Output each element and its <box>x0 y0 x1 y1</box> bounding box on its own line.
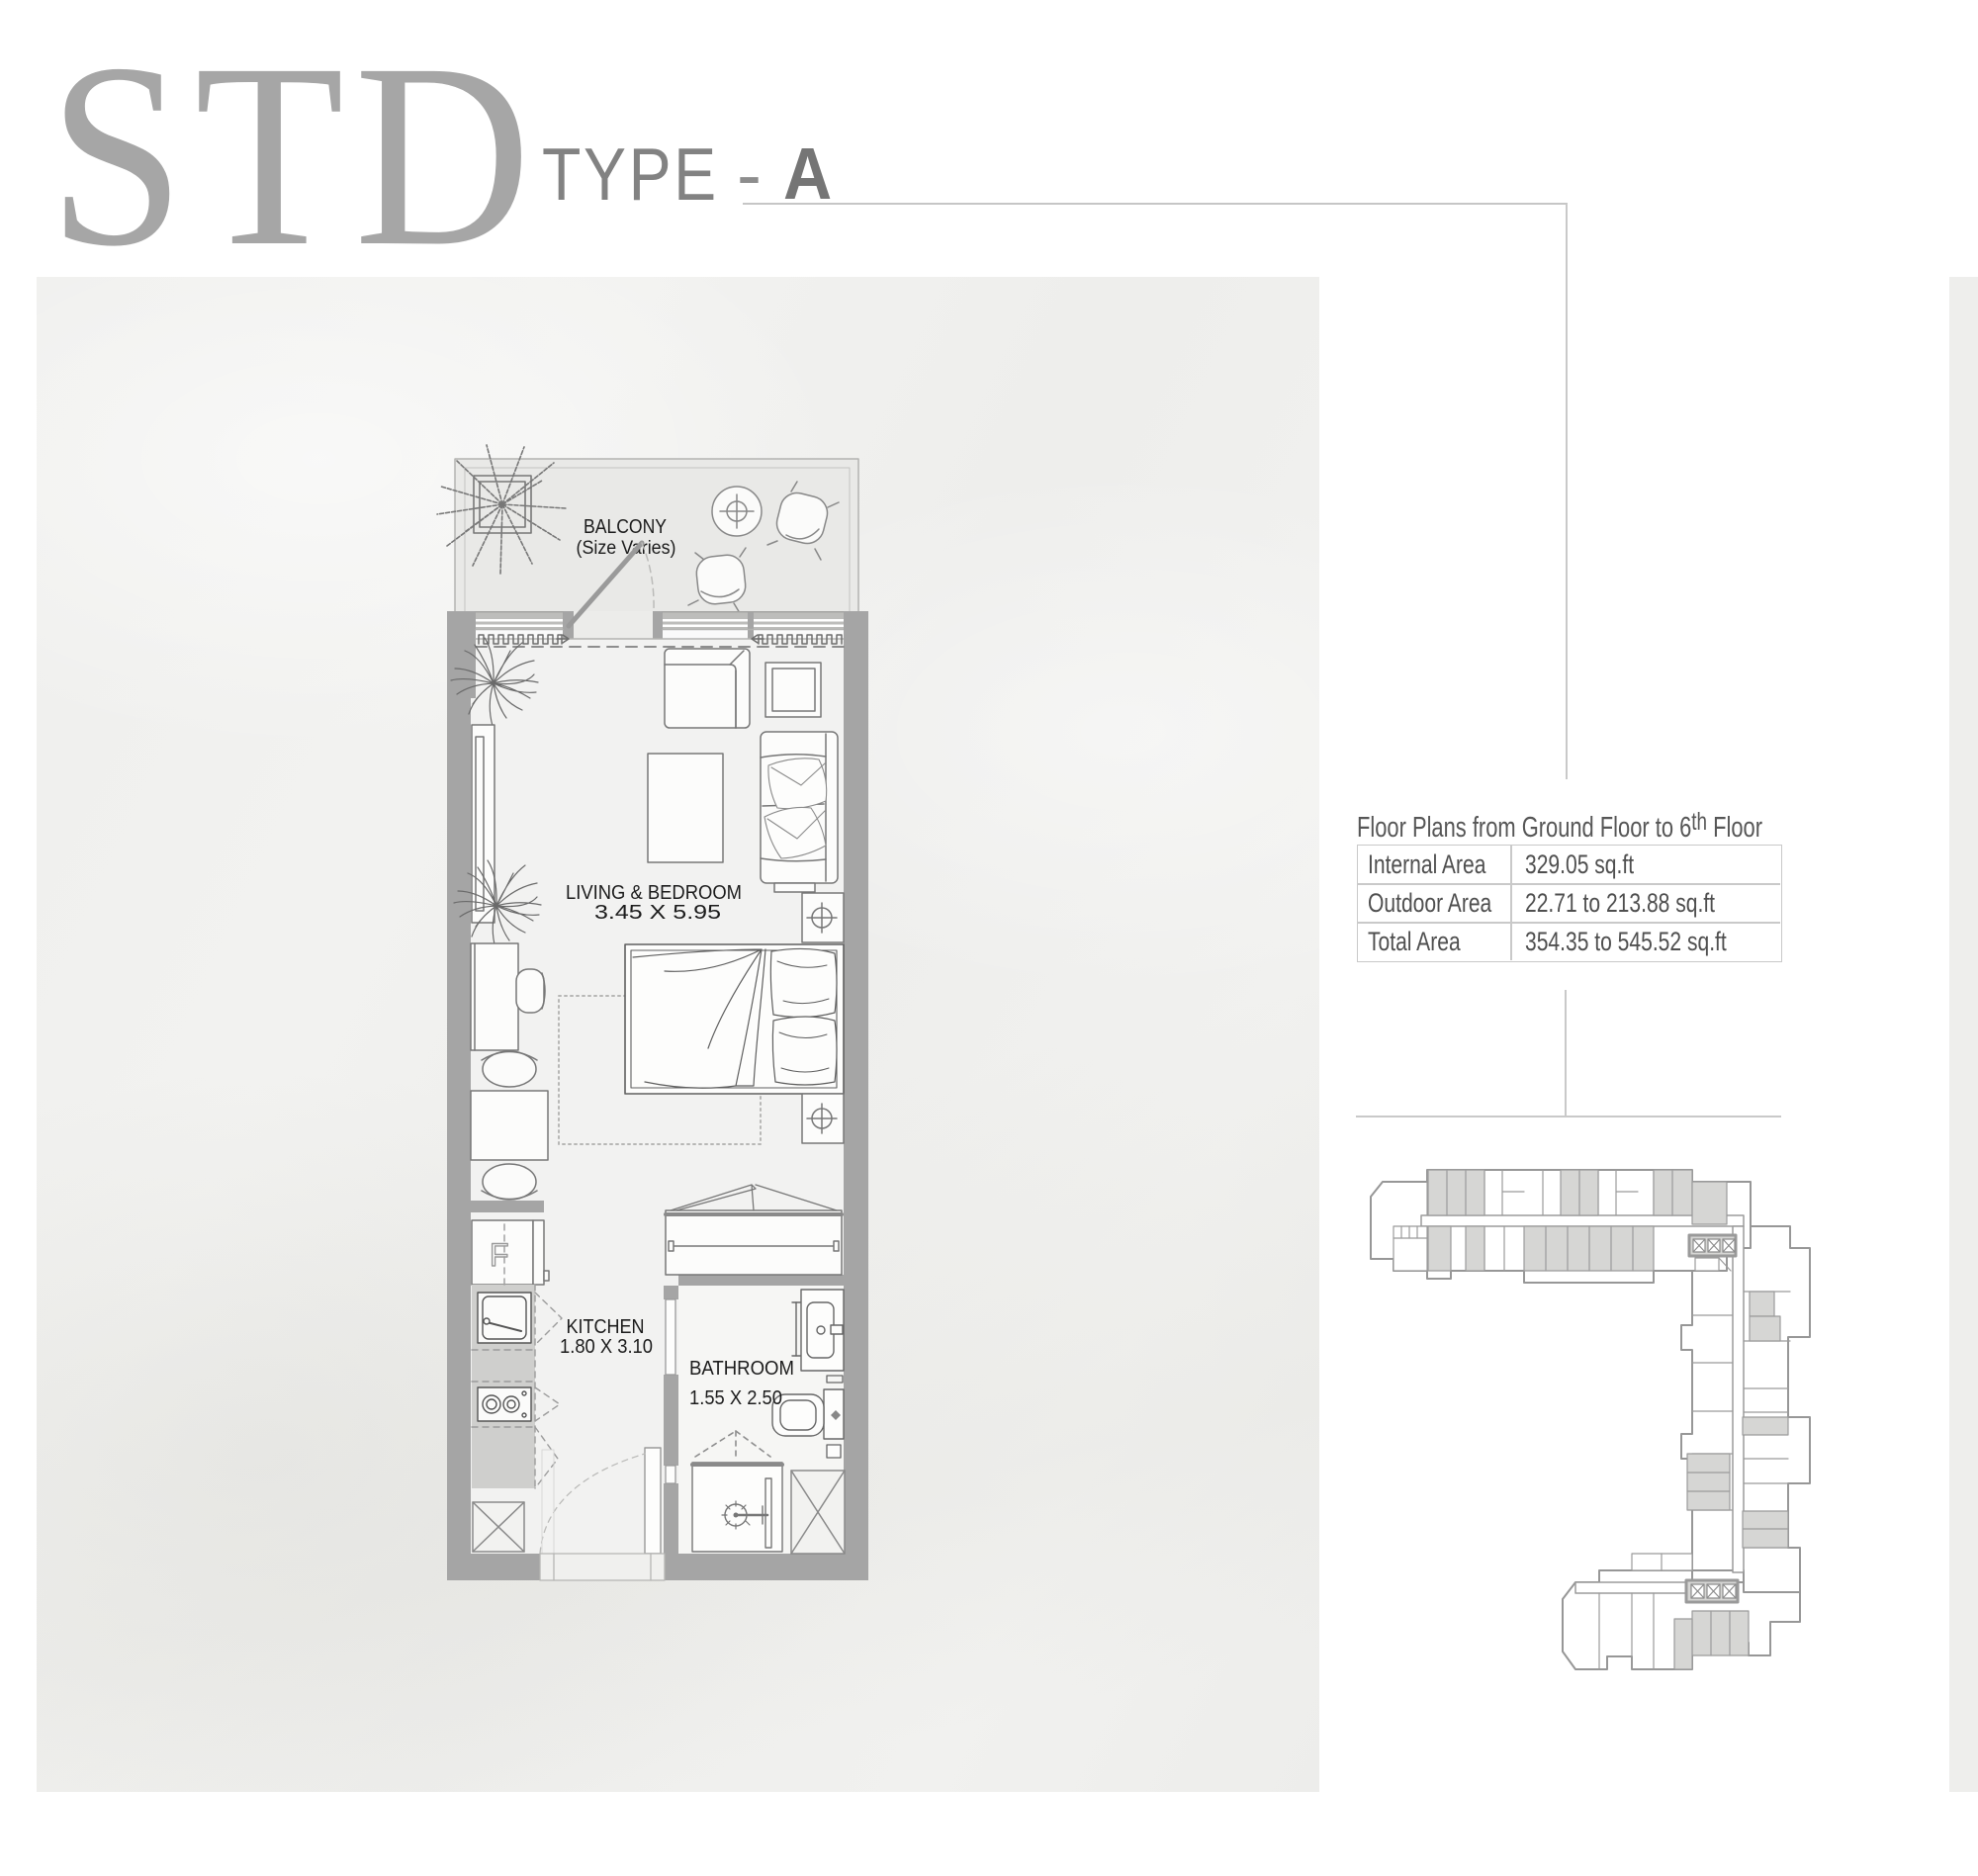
svg-text:BATHROOM: BATHROOM <box>689 1358 794 1380</box>
svg-text:BALCONY: BALCONY <box>584 516 667 538</box>
svg-text:F: F <box>490 1237 509 1273</box>
svg-text:1.55 X 2.50: 1.55 X 2.50 <box>689 1387 782 1409</box>
svg-text:1.80 X 3.10: 1.80 X 3.10 <box>560 1336 653 1358</box>
svg-text:LIVING & BEDROOM: LIVING & BEDROOM <box>566 882 742 904</box>
svg-text:(Size Varies): (Size Varies) <box>577 538 676 559</box>
svg-text:3.45 X 5.95: 3.45 X 5.95 <box>594 902 721 924</box>
svg-text:KITCHEN: KITCHEN <box>567 1316 645 1338</box>
